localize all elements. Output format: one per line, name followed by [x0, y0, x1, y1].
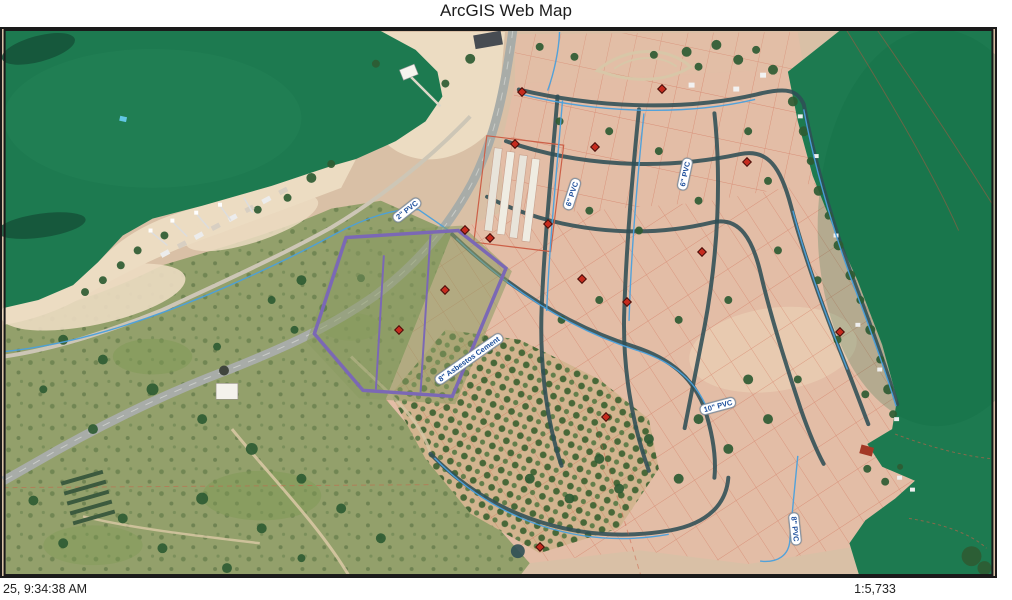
fire-hydrant-marker — [535, 542, 545, 552]
pipe-label: 8" Asbestos Cement — [433, 331, 506, 386]
pipe-label: 6" PVC — [676, 157, 694, 192]
fire-hydrant-marker — [601, 412, 611, 422]
fire-hydrant-marker — [543, 219, 553, 229]
pipe-label: 2" PVC — [391, 195, 424, 224]
pipe-label: 6" PVC — [562, 176, 583, 211]
print-page: ArcGIS Web Map — [0, 0, 1012, 600]
fire-hydrant-marker — [622, 297, 632, 307]
map-title: ArcGIS Web Map — [0, 1, 1012, 21]
export-timestamp: 25, 9:34:38 AM — [3, 582, 87, 596]
map-scale: 1:5,733 — [830, 582, 920, 596]
map-viewport[interactable]: 2" PVC6" PVC6" PVC8" Asbestos Cement10" … — [0, 27, 997, 578]
fire-hydrant-marker — [517, 87, 527, 97]
fire-hydrant-marker — [657, 84, 667, 94]
fire-hydrant-marker — [485, 233, 495, 243]
fire-hydrant-marker — [697, 247, 707, 257]
pipe-label: 8" PVC — [788, 512, 802, 546]
fire-hydrant-marker — [460, 225, 470, 235]
fire-hydrant-marker — [394, 325, 404, 335]
map-overlays: 2" PVC6" PVC6" PVC8" Asbestos Cement10" … — [2, 29, 995, 576]
fire-hydrant-marker — [440, 285, 450, 295]
pipe-label: 10" PVC — [699, 396, 738, 416]
fire-hydrant-marker — [742, 157, 752, 167]
fire-hydrant-marker — [510, 139, 520, 149]
fire-hydrant-marker — [835, 327, 845, 337]
fire-hydrant-marker — [590, 142, 600, 152]
fire-hydrant-marker — [577, 274, 587, 284]
